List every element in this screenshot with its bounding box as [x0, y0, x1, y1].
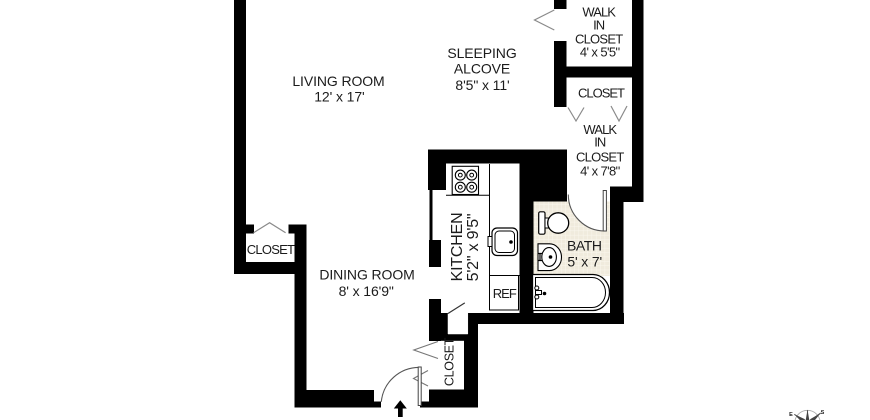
svg-text:CLOSET: CLOSET — [578, 86, 625, 101]
svg-text:KITCHEN: KITCHEN — [449, 213, 466, 282]
svg-text:4' x 5'5": 4' x 5'5" — [580, 44, 621, 59]
svg-text:8' x 16'9": 8' x 16'9" — [339, 283, 394, 299]
svg-text:CLOSET: CLOSET — [443, 337, 457, 386]
svg-text:E: E — [789, 412, 793, 418]
svg-text:4' x 7'8": 4' x 7'8" — [580, 163, 621, 178]
svg-text:S: S — [821, 410, 825, 416]
svg-text:12' x 17': 12' x 17' — [314, 89, 364, 105]
svg-text:8'5" x 11': 8'5" x 11' — [455, 77, 509, 93]
svg-text:IN: IN — [594, 135, 606, 150]
svg-text:SLEEPING: SLEEPING — [447, 45, 516, 61]
svg-text:ALCOVE: ALCOVE — [454, 61, 510, 77]
svg-text:5'2" x 9'5": 5'2" x 9'5" — [465, 214, 482, 282]
svg-text:5' x 7': 5' x 7' — [567, 253, 602, 269]
svg-text:DINING ROOM: DINING ROOM — [319, 266, 414, 282]
svg-text:CLOSET: CLOSET — [247, 242, 295, 257]
svg-text:LIVING ROOM: LIVING ROOM — [292, 73, 384, 89]
svg-text:REF: REF — [493, 286, 517, 301]
svg-text:IN: IN — [593, 18, 605, 33]
svg-text:BATH: BATH — [567, 238, 602, 254]
